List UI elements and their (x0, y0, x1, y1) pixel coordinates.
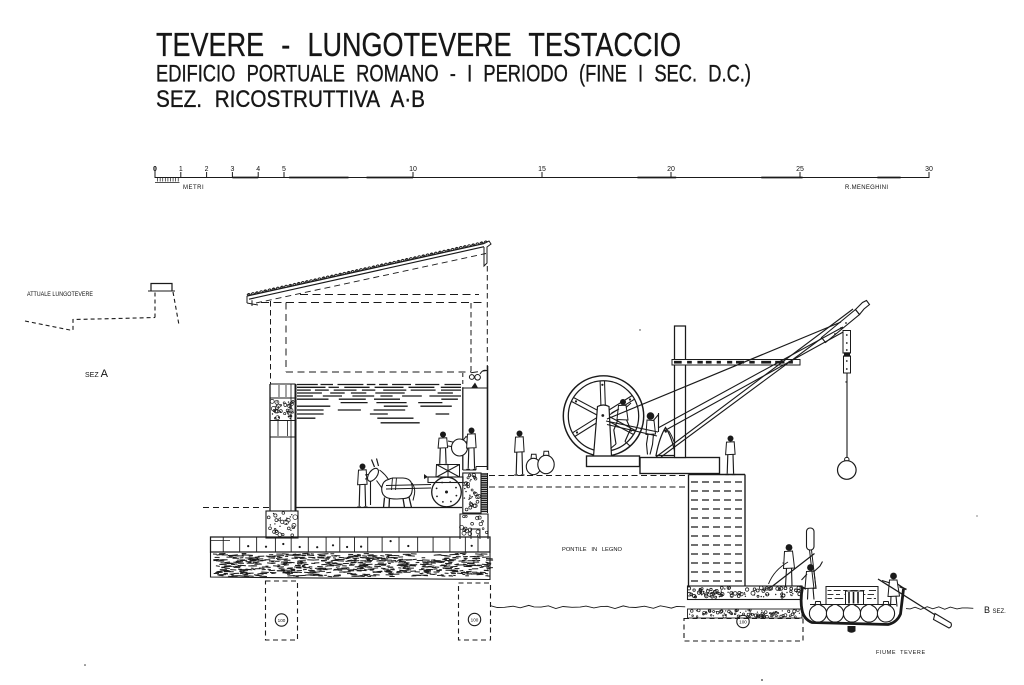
svg-text:FIUME TEVERE: FIUME TEVERE (876, 650, 926, 656)
svg-text:4: 4 (256, 166, 260, 173)
svg-text:30: 30 (925, 166, 933, 173)
svg-text:100: 100 (739, 619, 747, 624)
svg-text:1: 1 (179, 166, 183, 173)
svg-text:10: 10 (409, 166, 417, 173)
svg-text:100: 100 (278, 618, 286, 623)
svg-text:5: 5 (282, 166, 286, 173)
svg-text:PONTILE IN LEGNO: PONTILE IN LEGNO (562, 547, 623, 553)
svg-text:R.MENEGHINI: R.MENEGHINI (845, 185, 888, 191)
svg-text:METRI: METRI (183, 185, 204, 191)
svg-text:ATTUALE LUNGOTEVERE: ATTUALE LUNGOTEVERE (27, 291, 93, 298)
svg-text:15: 15 (538, 166, 546, 173)
svg-text:EDIFICIO PORTUALE ROMANO - I P: EDIFICIO PORTUALE ROMANO - I PERIODO (FI… (156, 61, 751, 88)
svg-text:SEZ. RICOSTRUTTIVA A·B: SEZ. RICOSTRUTTIVA A·B (156, 86, 425, 113)
svg-text:2: 2 (205, 166, 209, 173)
svg-text:25: 25 (796, 166, 804, 173)
svg-text:0: 0 (153, 166, 157, 173)
svg-text:20: 20 (667, 166, 675, 173)
svg-text:SEZ A: SEZ A (85, 368, 109, 380)
svg-text:3: 3 (230, 166, 234, 173)
svg-text:100: 100 (471, 617, 479, 622)
svg-text:B SEZ.: B SEZ. (984, 605, 1006, 615)
svg-text:TEVERE - LUNGOTEVERE TESTACCIO: TEVERE - LUNGOTEVERE TESTACCIO (156, 27, 681, 64)
